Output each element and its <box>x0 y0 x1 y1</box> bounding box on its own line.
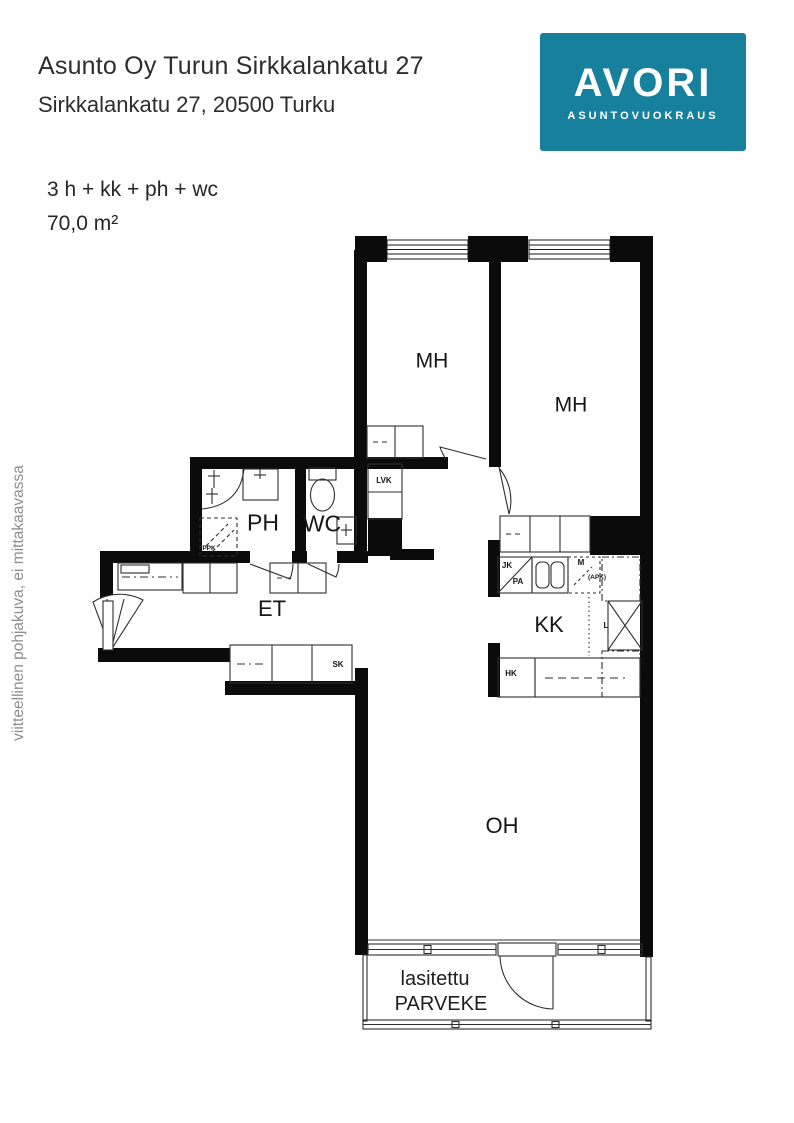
shower-area <box>202 469 244 509</box>
wardrobe-bedroom-1 <box>367 426 423 458</box>
fixture-label-hk: HK <box>505 670 517 678</box>
room-label-living-room: OH <box>486 815 519 837</box>
room-label-hallway: ET <box>258 598 286 620</box>
kitchen-lower-cabinets <box>498 658 640 697</box>
wardrobe-bedroom-2 <box>500 516 590 552</box>
sink-bathroom <box>243 469 278 500</box>
room-label-bedroom-2: MH <box>555 395 588 416</box>
door-wc <box>308 564 339 577</box>
fixture-label-apk: (APK) <box>588 575 606 582</box>
fixture-label-pa: PA <box>513 578 524 586</box>
room-label-balcony-line2: PARVEKE <box>395 994 488 1014</box>
door-bedroom-2 <box>499 467 511 514</box>
kitchen-sink <box>532 557 568 593</box>
balcony-window-left <box>368 944 496 955</box>
kitchen-tall-cabinet <box>608 601 642 650</box>
walls <box>98 236 653 957</box>
entry-door <box>93 594 143 650</box>
room-label-bedroom-1: MH <box>416 351 449 372</box>
toilet <box>309 468 336 511</box>
door-bathroom <box>250 564 293 579</box>
fixture-label-jk: JK <box>502 562 512 570</box>
window-top-right <box>529 240 610 259</box>
room-label-bathroom: PH <box>247 512 279 535</box>
room-label-kitchenette: KK <box>534 614 563 636</box>
hallway-cabinets <box>118 563 326 593</box>
fixture-label-lvk: LVK <box>376 477 391 485</box>
window-top-left <box>387 240 468 259</box>
balcony-door <box>498 943 556 1009</box>
fixture-label-sk: SK <box>332 661 343 669</box>
fixture-label-ppk: PPK <box>202 546 215 553</box>
balcony-window-right <box>558 944 642 955</box>
balcony-glazing <box>363 955 651 1029</box>
floorplan-drawing <box>0 0 794 1123</box>
room-label-wc: WC <box>303 513 341 536</box>
fixture-label-m: M <box>578 559 585 567</box>
room-label-balcony-line1: lasitettu <box>401 969 470 989</box>
closet-lvk <box>368 464 402 519</box>
fixture-label-l: L <box>604 622 609 630</box>
